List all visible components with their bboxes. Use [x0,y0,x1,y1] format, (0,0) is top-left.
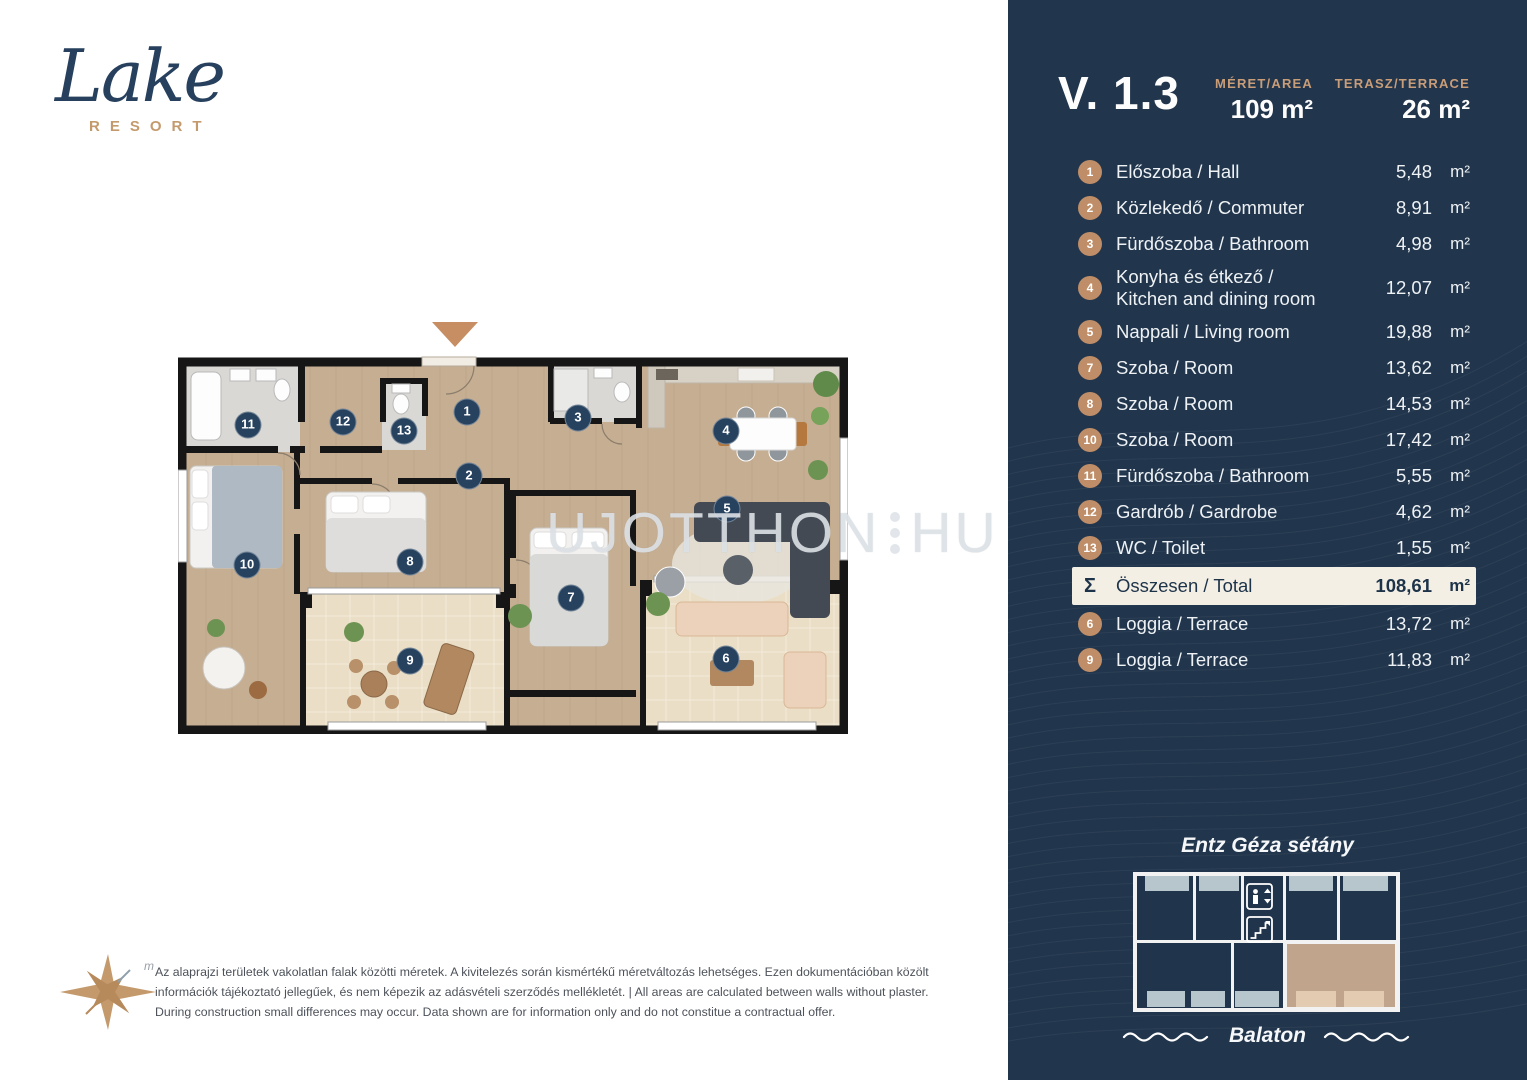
logo-subtitle: RESORT [89,118,224,135]
room-label: Fürdőszoba / Bathroom [1116,233,1354,255]
plan-room-badge: 4 [713,418,740,445]
sigma-icon: Σ [1078,574,1102,598]
ujotthon-watermark: UJOTTHON HU [546,500,999,566]
stat-terrace: TERASZ/TERRACE 26 m² [1335,76,1470,125]
street-label: Entz Géza sétány [1008,834,1527,858]
plan-room-badge: 7 [558,585,585,612]
room-number-badge: 7 [1078,356,1102,380]
room-area-unit: m² [1432,234,1470,254]
room-label: Szoba / Room [1116,393,1354,415]
wave-left-icon [1121,1029,1213,1043]
room-area: 4,98 [1354,233,1432,255]
room-area: 5,55 [1354,465,1432,487]
room-row: 5Nappali / Living room19,88m² [1078,314,1470,350]
room-number-badge: 5 [1078,320,1102,344]
room-area-unit: m² [1432,502,1470,522]
room-area: 1,55 [1354,537,1432,559]
room-row: 7Szoba / Room13,62m² [1078,350,1470,386]
watermark-right: HU [910,500,998,566]
room-area-unit: m² [1432,162,1470,182]
room-area: 8,91 [1354,197,1432,219]
disclaimer-text: Az alaprajzi területek vakolatlan falak … [155,963,985,1023]
room-row: 3Fürdőszoba / Bathroom4,98m² [1078,226,1470,262]
room-area-unit: m² [1432,394,1470,414]
compass-label: m [144,959,154,973]
building-locator-plan [1133,872,1400,1012]
stat-area-label: MÉRET/AREA [1215,76,1313,91]
room-area-unit: m² [1432,198,1470,218]
room-label: WC / Toilet [1116,537,1354,559]
room-label: Összesen / Total [1116,575,1354,597]
room-area-unit: m² [1432,614,1470,634]
room-label: Szoba / Room [1116,357,1354,379]
room-area: 12,07 [1354,277,1432,299]
floorplan-sheet: Lake RESORT [0,0,1527,1080]
plan-room-badge: 13 [391,418,418,445]
room-area-unit: m² [1432,466,1470,486]
plan-room-badge: 1 [454,399,481,426]
room-label: Loggia / Terrace [1116,613,1354,635]
wave-right-icon [1322,1029,1414,1043]
room-row: 11Fürdőszoba / Bathroom5,55m² [1078,458,1470,494]
room-label: Loggia / Terrace [1116,649,1354,671]
room-area-unit: m² [1432,430,1470,450]
room-row: 13WC / Toilet1,55m² [1078,530,1470,566]
room-label: Gardrób / Gardrobe [1116,501,1354,523]
stat-area-value: 109 m² [1215,94,1313,125]
plan-room-badge: 9 [397,648,424,675]
compass-icon: m [56,946,160,1038]
plan-room-badge: 2 [456,463,483,490]
room-number-badge: 9 [1078,648,1102,672]
plan-room-badge: 6 [713,646,740,673]
room-area-unit: m² [1432,538,1470,558]
stat-area: MÉRET/AREA 109 m² [1215,76,1313,125]
room-area: 4,62 [1354,501,1432,523]
room-area: 11,83 [1354,649,1432,671]
lake-resort-logo: Lake RESORT [55,40,224,135]
room-area-unit: m² [1432,358,1470,378]
room-label: Fürdőszoba / Bathroom [1116,465,1354,487]
room-area: 5,48 [1354,161,1432,183]
watermark-dots-icon [890,512,900,554]
logo-name: Lake [55,40,224,112]
entrance-arrow-icon [432,322,478,347]
room-label: Közlekedő / Commuter [1116,197,1354,219]
room-number-badge: 1 [1078,160,1102,184]
room-label: Szoba / Room [1116,429,1354,451]
lake-label: Balaton [1229,1024,1306,1048]
room-area: 19,88 [1354,321,1432,343]
plan-room-badge: 11 [235,412,262,439]
room-number-badge: 10 [1078,428,1102,452]
room-row: 8Szoba / Room14,53m² [1078,386,1470,422]
room-row: 10Szoba / Room17,42m² [1078,422,1470,458]
room-number-badge: 11 [1078,464,1102,488]
room-number-badge: 13 [1078,536,1102,560]
room-area: 14,53 [1354,393,1432,415]
stat-terrace-label: TERASZ/TERRACE [1335,76,1470,91]
room-number-badge: 3 [1078,232,1102,256]
unit-code: V. 1.3 [1058,66,1180,120]
plan-room-badge: 8 [397,549,424,576]
room-area: 108,61 [1354,575,1432,597]
room-label: Konyha és étkező / Kitchen and dining ro… [1116,266,1354,310]
room-row-total: ΣÖsszesen / Total108,61m² [1072,567,1476,605]
room-number-badge: 12 [1078,500,1102,524]
plan-room-badge: 12 [330,409,357,436]
room-row: 12Gardrób / Gardrobe4,62m² [1078,494,1470,530]
room-number-badge: 4 [1078,276,1102,300]
plan-room-badge: 10 [234,552,261,579]
room-label: Előszoba / Hall [1116,161,1354,183]
room-area: 17,42 [1354,429,1432,451]
info-panel: V. 1.3 MÉRET/AREA 109 m² TERASZ/TERRACE … [1008,0,1527,1080]
room-row: 2Közlekedő / Commuter8,91m² [1078,190,1470,226]
watermark-left: UJOTTHON [546,500,880,566]
room-number-badge: 8 [1078,392,1102,416]
room-area: 13,72 [1354,613,1432,635]
room-row: 4Konyha és étkező / Kitchen and dining r… [1078,262,1470,314]
room-label: Nappali / Living room [1116,321,1354,343]
room-row: 9Loggia / Terrace11,83m² [1078,642,1470,678]
room-row: 1Előszoba / Hall5,48m² [1078,154,1470,190]
room-number-badge: 2 [1078,196,1102,220]
stat-terrace-value: 26 m² [1335,94,1470,125]
room-area-unit: m² [1432,576,1470,596]
room-area-unit: m² [1432,278,1470,298]
room-area-unit: m² [1432,650,1470,670]
room-row: 6Loggia / Terrace13,72m² [1078,606,1470,642]
room-number-badge: 6 [1078,612,1102,636]
room-list: 1Előszoba / Hall5,48m²2Közlekedő / Commu… [1078,154,1470,678]
room-area-unit: m² [1432,322,1470,342]
balaton-row: Balaton [1008,1024,1527,1048]
room-area: 13,62 [1354,357,1432,379]
plan-room-badge: 3 [565,405,592,432]
